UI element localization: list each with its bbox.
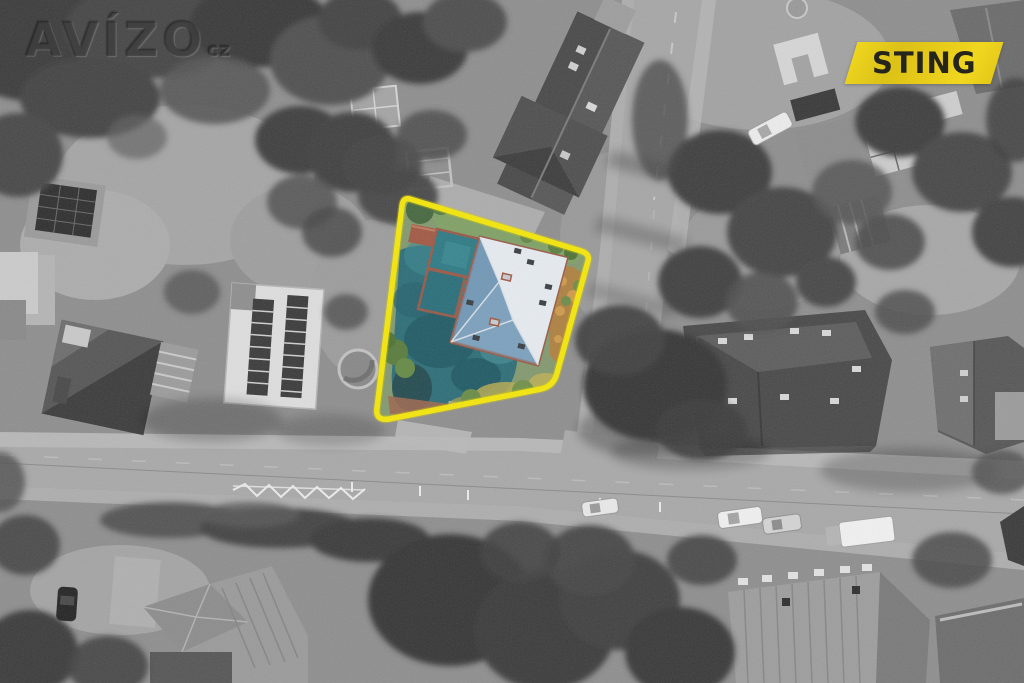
sting-badge-label: STING bbox=[872, 46, 977, 80]
aerial-photo-canvas bbox=[0, 0, 1024, 683]
avizo-watermark: AVÍZOcz bbox=[25, 17, 231, 64]
avizo-watermark-text: AVÍZO bbox=[25, 13, 206, 68]
avizo-watermark-suffix: cz bbox=[207, 39, 231, 61]
aerial-photo: AVÍZOcz STING bbox=[0, 0, 1024, 683]
photo-grain bbox=[0, 0, 1024, 683]
sting-badge: STING bbox=[845, 42, 1004, 84]
